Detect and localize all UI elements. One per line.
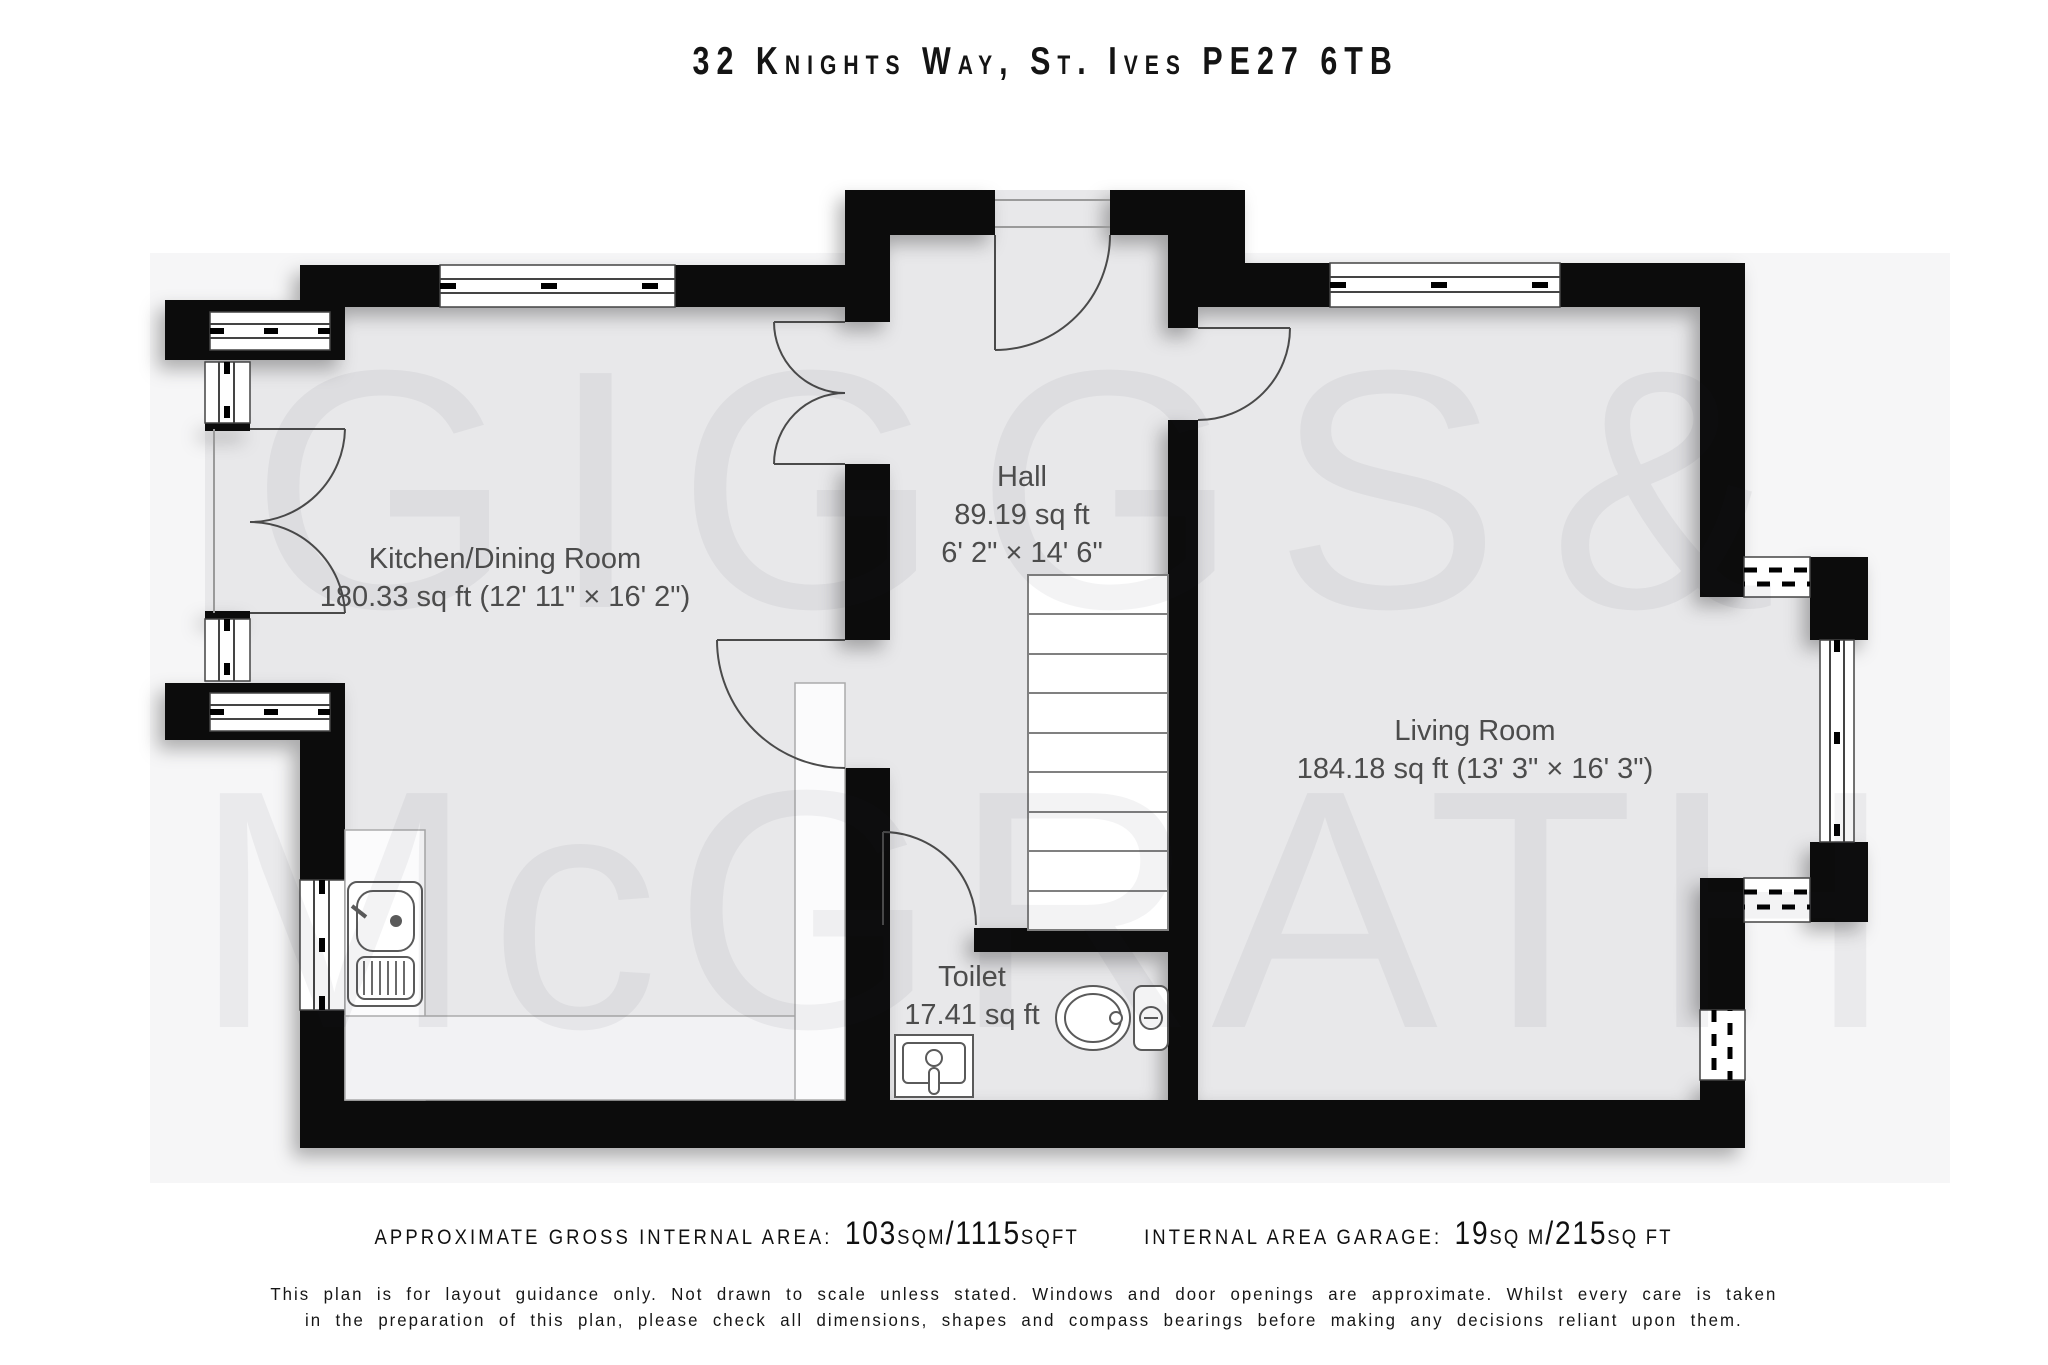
window [1330, 263, 1560, 307]
side-window [1700, 1010, 1745, 1080]
opening-floor [845, 322, 890, 464]
hall-living-divider [1168, 420, 1198, 1100]
bay-side-window [1820, 640, 1854, 842]
bay-corner-bottom [1810, 842, 1868, 922]
gross-area-slash: / [946, 1215, 956, 1252]
bay-corner-top [1810, 557, 1868, 640]
hall-toilet-wall [845, 928, 883, 952]
garage-area-sqft-value: 215 [1555, 1215, 1607, 1252]
kitchen-name: Kitchen/Dining Room [320, 540, 691, 578]
porch-wall-right [1110, 190, 1245, 235]
bay-window-floor [1700, 597, 1828, 878]
hall-toilet-wall [974, 928, 1168, 952]
living-room-dims: 184.18 sq ft (13' 3" × 16' 3") [1297, 750, 1654, 788]
living-right-wall [1700, 307, 1745, 557]
hall-dims: 6' 2" × 14' 6" [941, 534, 1102, 572]
stairs [1028, 575, 1168, 930]
garage-area-sqm-unit: SQ M [1490, 1226, 1546, 1250]
garage-area-slash: / [1546, 1215, 1556, 1252]
garage-area-sqm-value: 19 [1455, 1215, 1490, 1252]
bay-bottom-window [1744, 878, 1810, 922]
opening-floor [883, 928, 974, 952]
hall-name: Hall [941, 458, 1102, 496]
garage-area: INTERNAL AREA GARAGE: 19 SQ M / 215 SQ F… [1144, 1215, 1673, 1252]
wc-toilet [1056, 986, 1168, 1050]
window [210, 312, 330, 350]
bay-bottom-stub [1700, 878, 1744, 922]
gross-area-sqm-unit: SQM [897, 1226, 946, 1250]
wall-stub [205, 423, 250, 431]
gross-area-sqft-unit: SQFT [1021, 1226, 1079, 1250]
living-right-wall-lower [1700, 1080, 1745, 1100]
toilet-name: Toilet [904, 958, 1039, 996]
bay-top-stub [1700, 557, 1744, 597]
floorplan-page: 32 Knights Way, St. Ives PE27 6TB [0, 0, 2048, 1365]
kitchen-dims: 180.33 sq ft (12' 11" × 16' 2") [320, 578, 691, 616]
living-room-floor [1198, 263, 1700, 1100]
floor-plan-canvas [0, 0, 2048, 1365]
wash-basin [895, 1035, 973, 1097]
gross-area-sqm-value: 103 [845, 1215, 897, 1252]
opening-floor [205, 429, 250, 613]
opening-floor [845, 640, 890, 768]
toilet-area: 17.41 sq ft [904, 996, 1039, 1034]
bay-top-window [1744, 557, 1810, 597]
front-door-opening-floor [995, 190, 1110, 235]
hall-label: Hall 89.19 sq ft 6' 2" × 14' 6" [941, 458, 1102, 572]
window [205, 619, 250, 681]
window [440, 265, 675, 307]
gross-area-sqft-value: 1115 [956, 1215, 1022, 1252]
porch-wall-left [845, 190, 995, 235]
opening-floor [1168, 328, 1198, 420]
disclaimer-line2: in the preparation of this plan, please … [271, 1307, 1778, 1333]
gross-internal-area: APPROXIMATE GROSS INTERNAL AREA: 103 SQM… [375, 1215, 1079, 1252]
area-summary: APPROXIMATE GROSS INTERNAL AREA: 103 SQM… [0, 1215, 2048, 1252]
kitchen-label: Kitchen/Dining Room 180.33 sq ft (12' 11… [320, 540, 691, 616]
kitchen-hall-divider [845, 464, 890, 640]
living-room-name: Living Room [1297, 712, 1654, 750]
window [300, 880, 345, 1010]
living-room-label: Living Room 184.18 sq ft (13' 3" × 16' 3… [1297, 712, 1654, 788]
wall-stub [205, 611, 250, 619]
hall-living-divider [1168, 235, 1198, 328]
window [210, 693, 330, 731]
disclaimer-line1: This plan is for layout guidance only. N… [271, 1281, 1778, 1307]
gross-area-label: APPROXIMATE GROSS INTERNAL AREA: [375, 1226, 833, 1250]
bottom-wall [300, 1100, 1745, 1148]
hall-area: 89.19 sq ft [941, 496, 1102, 534]
kitchen-sink [348, 882, 422, 1006]
garage-area-label: INTERNAL AREA GARAGE: [1144, 1226, 1442, 1250]
garage-area-sqft-unit: SQ FT [1608, 1226, 1673, 1250]
window [205, 362, 250, 423]
toilet-label: Toilet 17.41 sq ft [904, 958, 1039, 1034]
disclaimer: This plan is for layout guidance only. N… [0, 1281, 2048, 1333]
counter-bottom [345, 1016, 840, 1100]
living-right-wall-lower [1700, 922, 1745, 1010]
counter-right [795, 683, 845, 1100]
